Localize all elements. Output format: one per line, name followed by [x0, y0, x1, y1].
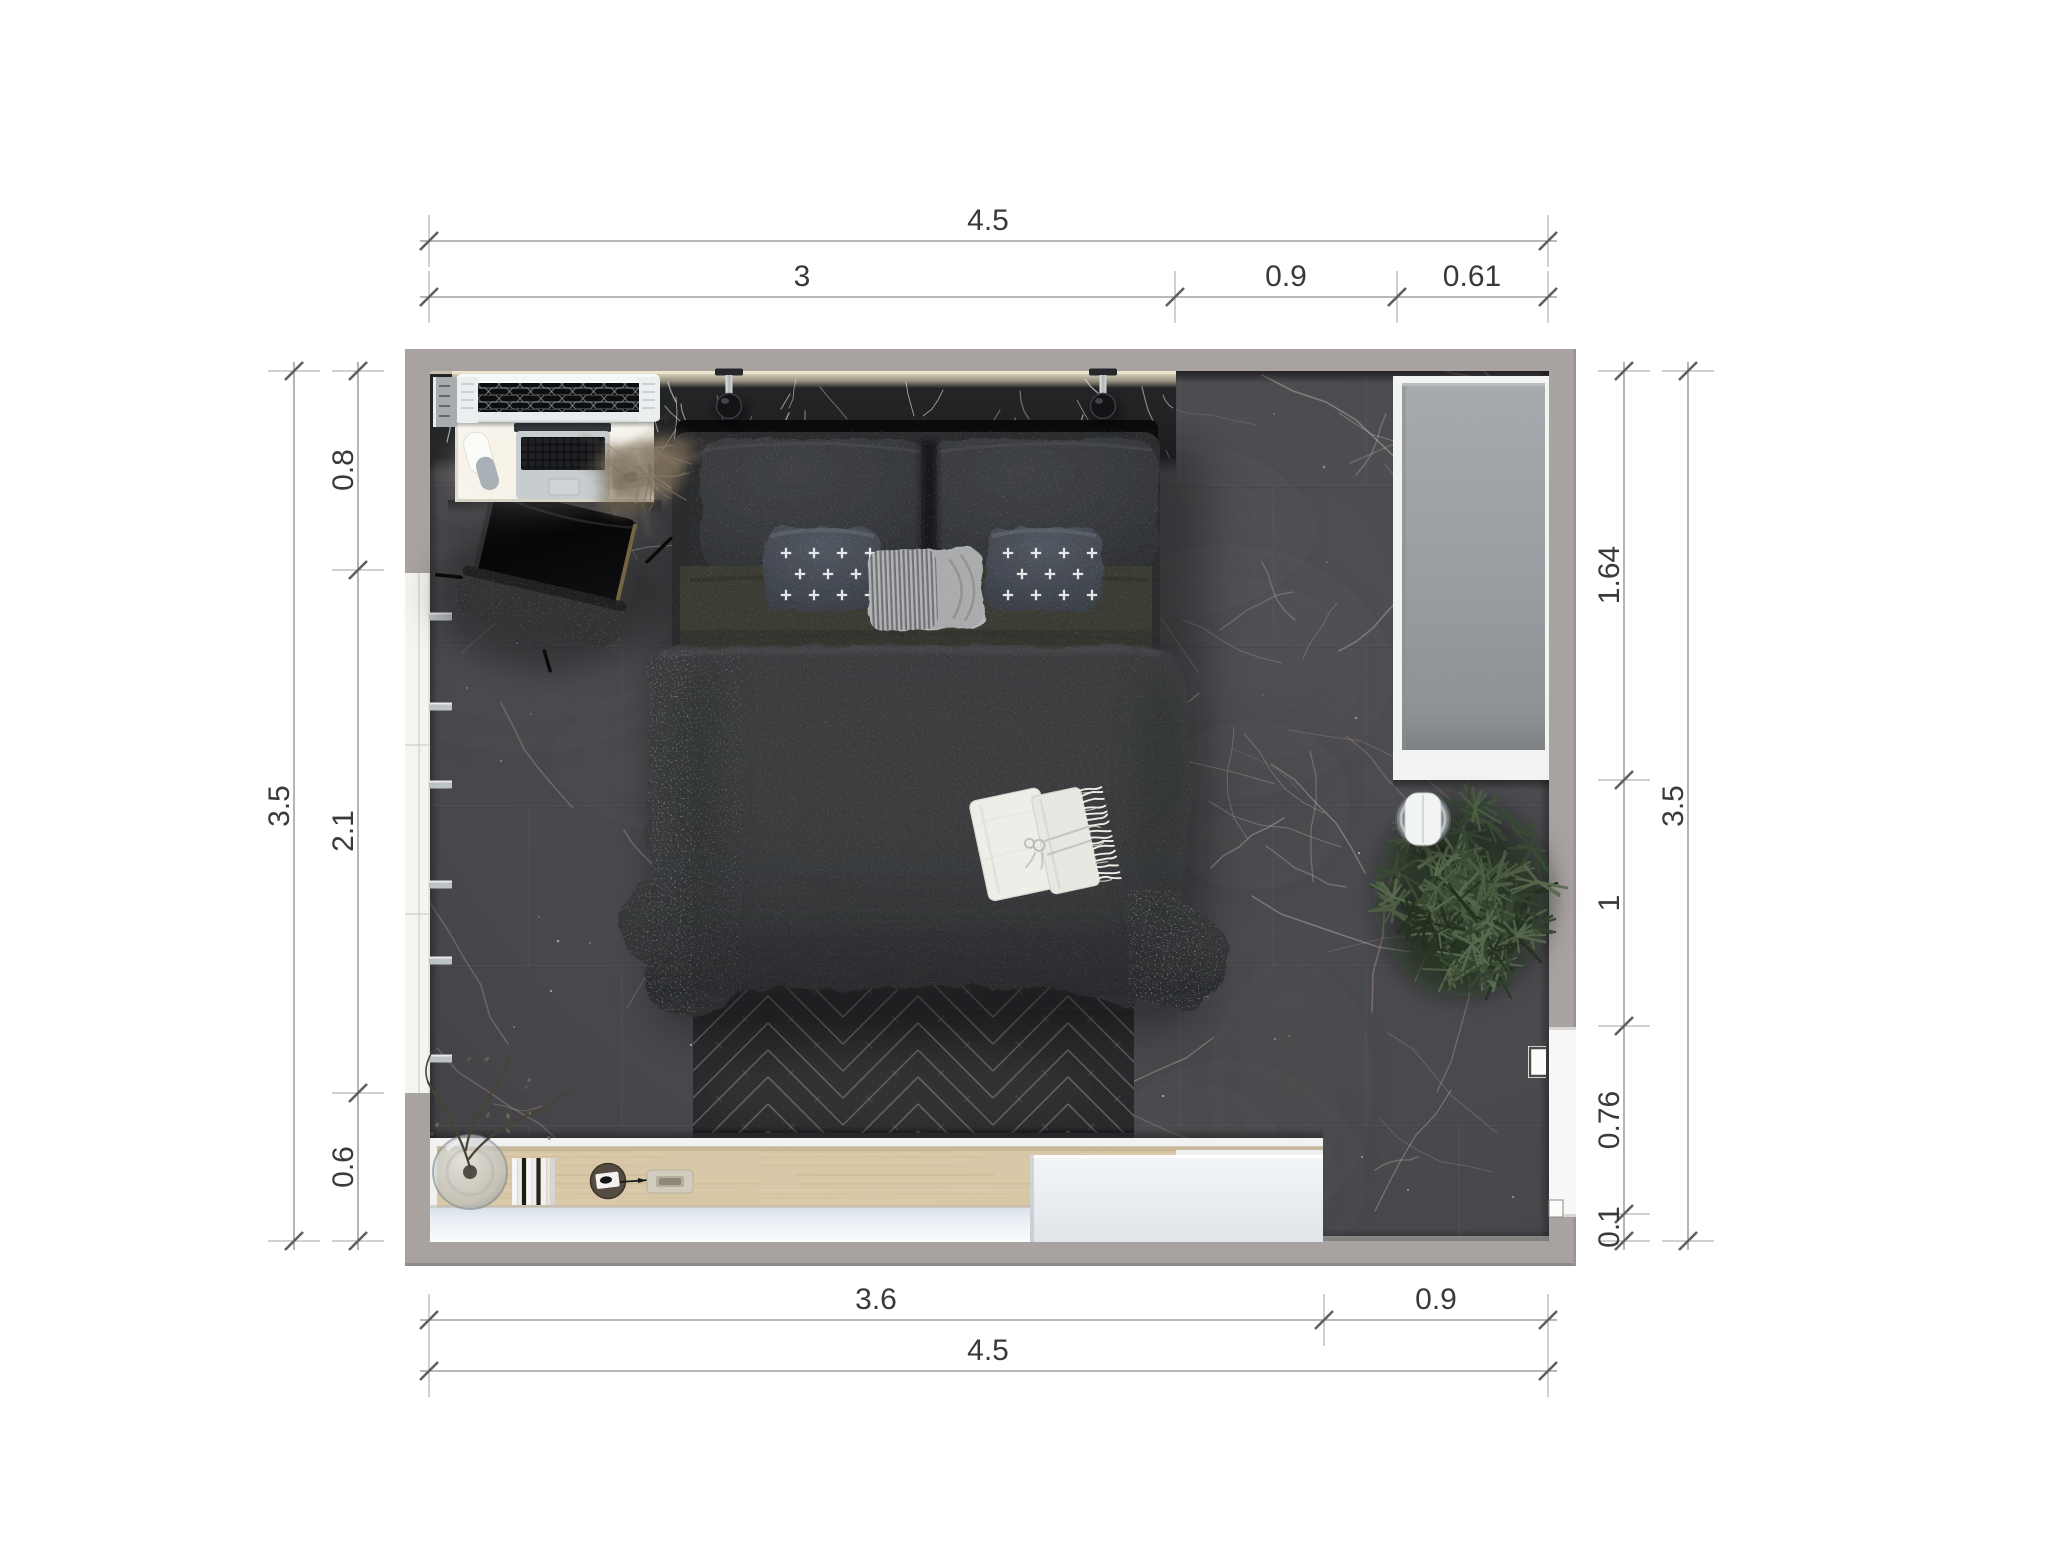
svg-text:3: 3 [794, 260, 811, 293]
svg-text:0.76: 0.76 [1593, 1091, 1626, 1149]
svg-text:0.8: 0.8 [327, 449, 360, 491]
svg-text:0.9: 0.9 [1265, 260, 1307, 293]
svg-text:0.9: 0.9 [1415, 1283, 1457, 1316]
svg-text:0.1: 0.1 [1593, 1206, 1626, 1248]
svg-text:1: 1 [1593, 895, 1626, 912]
svg-text:1.64: 1.64 [1593, 546, 1626, 604]
svg-text:3.5: 3.5 [1657, 785, 1690, 827]
svg-text:4.5: 4.5 [967, 204, 1009, 237]
svg-text:2.1: 2.1 [327, 810, 360, 852]
svg-text:0.61: 0.61 [1443, 260, 1501, 293]
svg-text:3.6: 3.6 [855, 1283, 897, 1316]
svg-text:4.5: 4.5 [967, 1334, 1009, 1367]
svg-text:0.6: 0.6 [327, 1146, 360, 1188]
svg-text:3.5: 3.5 [263, 785, 296, 827]
